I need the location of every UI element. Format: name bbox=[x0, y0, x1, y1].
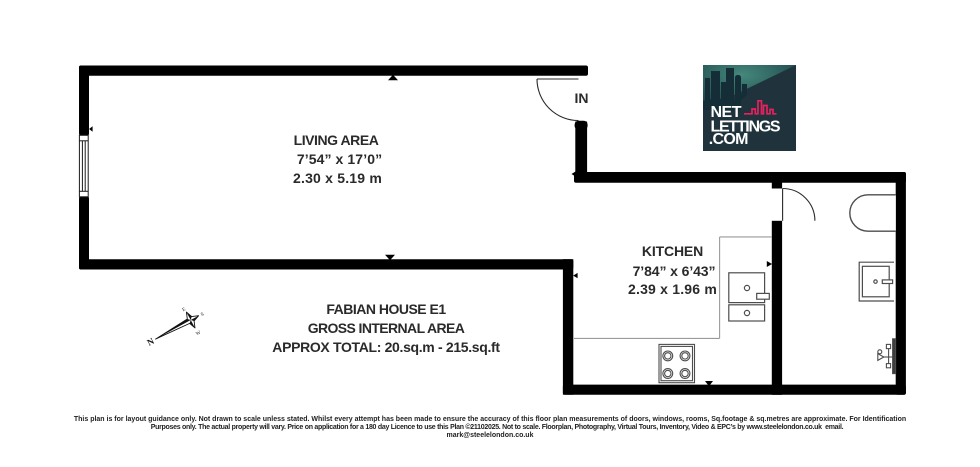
svg-text:N: N bbox=[145, 336, 156, 348]
svg-text:W: W bbox=[195, 330, 202, 337]
svg-text:S: S bbox=[200, 312, 205, 318]
svg-text:.COM: .COM bbox=[709, 131, 748, 148]
